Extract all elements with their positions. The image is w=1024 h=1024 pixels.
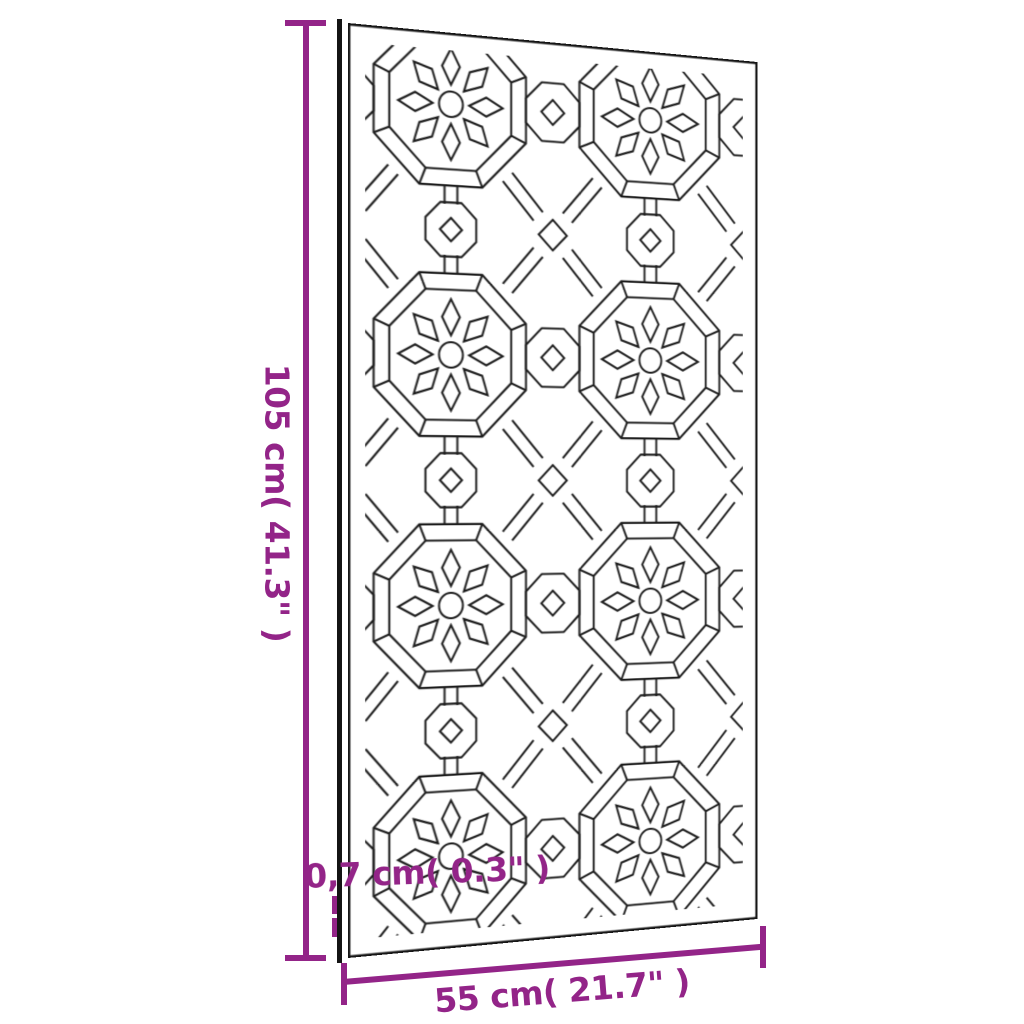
height-dimension-line	[303, 20, 309, 961]
height-dimension-label: 105 cm( 41.3" )	[258, 364, 297, 643]
width-dimension-right-tick	[760, 926, 766, 968]
wall-panel	[348, 23, 757, 958]
height-dimension-bottom-cap	[285, 955, 326, 961]
height-dimension-top-cap	[285, 20, 326, 26]
panel-side-edge	[337, 19, 342, 963]
product-dimension-diagram: 105 cm( 41.3" ) 55 cm( 21.7" ) 0,7 cm( 0…	[0, 0, 1024, 1024]
width-dimension-left-tick	[341, 963, 347, 1005]
panel-pattern-area	[365, 43, 743, 939]
moorish-pattern-svg	[348, 23, 757, 958]
